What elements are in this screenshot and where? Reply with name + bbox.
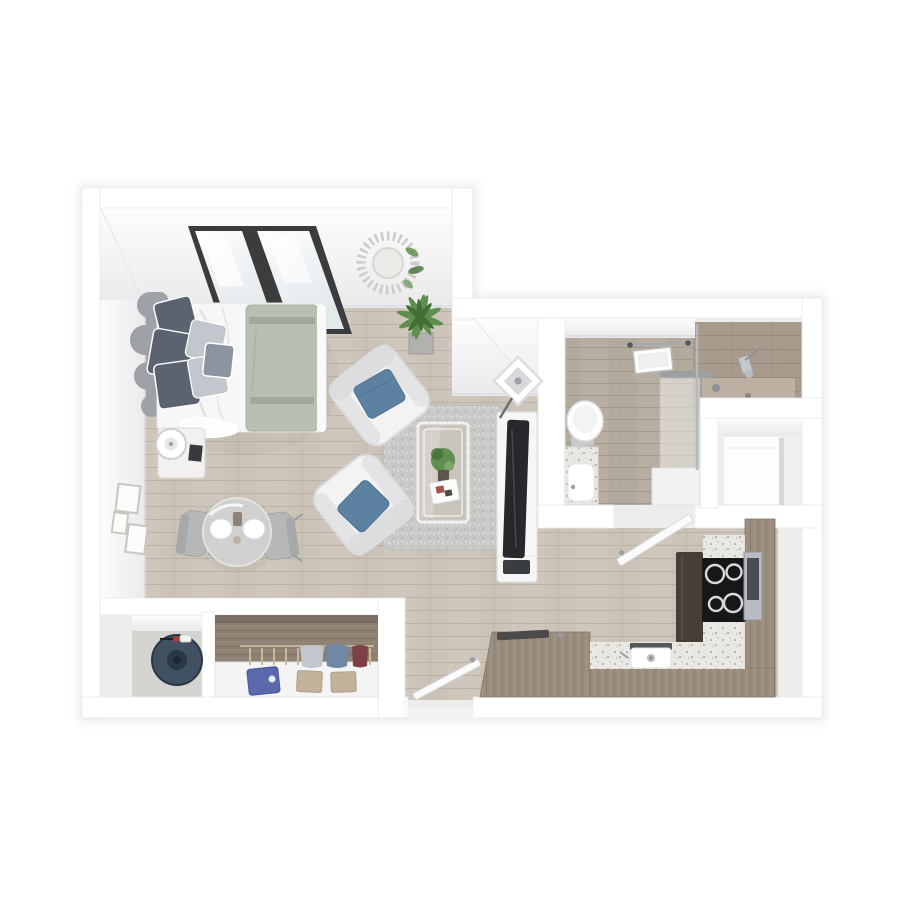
wall-bath-left <box>538 318 565 528</box>
plate-2 <box>243 519 265 539</box>
table-lamp-finial <box>169 442 173 446</box>
heater-fitting <box>180 635 191 642</box>
duvet-band-bottom <box>250 397 314 404</box>
wall-bottom-right <box>473 697 822 718</box>
folded-blue-item <box>247 666 281 695</box>
wall-bath-bottom-a <box>538 505 614 528</box>
water-heater-closet <box>152 635 202 685</box>
wall-left <box>82 188 100 718</box>
counter-utensil <box>558 633 563 638</box>
tv-console <box>497 412 537 582</box>
peninsula-counter <box>480 632 590 697</box>
shower-valve <box>712 384 720 392</box>
shower-head-face <box>745 370 753 378</box>
towel-bar-mount-l <box>627 342 633 348</box>
water-heater-cap <box>173 656 181 664</box>
wall-wing-top <box>452 298 822 318</box>
books-stack <box>188 444 203 461</box>
art-frame-2 <box>112 512 128 534</box>
oven-window <box>747 558 759 600</box>
niche-face <box>718 418 802 435</box>
folded-tan-item-2 <box>331 672 357 693</box>
wall-utility-divider <box>202 612 215 697</box>
heater-valve <box>173 636 179 642</box>
wall-bottom-left <box>82 697 408 718</box>
coffee-table-plant-light <box>444 461 454 471</box>
heater-closet-face <box>132 615 202 631</box>
pillow-accent <box>202 343 234 379</box>
appliance-unit <box>723 436 783 505</box>
mirror-center <box>373 248 403 278</box>
vanity <box>565 447 598 505</box>
nightstand <box>156 428 205 478</box>
media-equipment <box>503 560 530 574</box>
floor-plan-canvas <box>0 0 900 900</box>
vent-inner <box>637 351 668 369</box>
appliance-closet <box>723 436 784 505</box>
entry-threshold <box>408 708 473 718</box>
art-frame-3 <box>125 524 147 554</box>
wardrobe-closet <box>215 615 378 697</box>
vanity-sink <box>568 464 594 501</box>
coffee-table-plant-dark <box>431 448 443 460</box>
table-centerpiece <box>233 512 242 526</box>
shower-glass-top-rail <box>660 372 714 378</box>
hanging-garment-red <box>352 645 368 668</box>
sink-drain-hole <box>650 657 653 660</box>
counter-front <box>590 668 775 697</box>
refrigerator <box>676 552 703 645</box>
magazine-photo-2 <box>445 489 453 496</box>
art-frame-1 <box>115 484 140 513</box>
wall-utility-top <box>100 598 405 615</box>
magazine <box>429 479 459 504</box>
floor-plan-image <box>0 0 900 900</box>
shower-half-wall <box>652 468 700 505</box>
wardrobe-top-shadow <box>215 615 378 623</box>
ceiling-vent <box>633 347 673 374</box>
bed-platform-edge <box>317 305 326 432</box>
bath-wall-face <box>565 318 695 338</box>
hanging-garment-denim <box>325 644 349 668</box>
wall-utility-right <box>378 598 405 718</box>
plate-1 <box>210 519 232 539</box>
magazine-photo-1 <box>436 485 445 493</box>
sink-faucet <box>571 485 575 489</box>
wall-closet-top <box>700 398 822 418</box>
hanging-garment-gray <box>300 645 324 668</box>
towel-bar-mount-r <box>685 340 691 346</box>
table-decor <box>233 536 241 544</box>
wall-top <box>82 188 473 208</box>
folded-blue-button <box>269 676 276 683</box>
duvet-band-top <box>249 317 315 324</box>
folded-tan-item-1 <box>296 670 322 692</box>
coffee-table <box>418 423 468 522</box>
toilet-lid-inner <box>573 405 597 433</box>
